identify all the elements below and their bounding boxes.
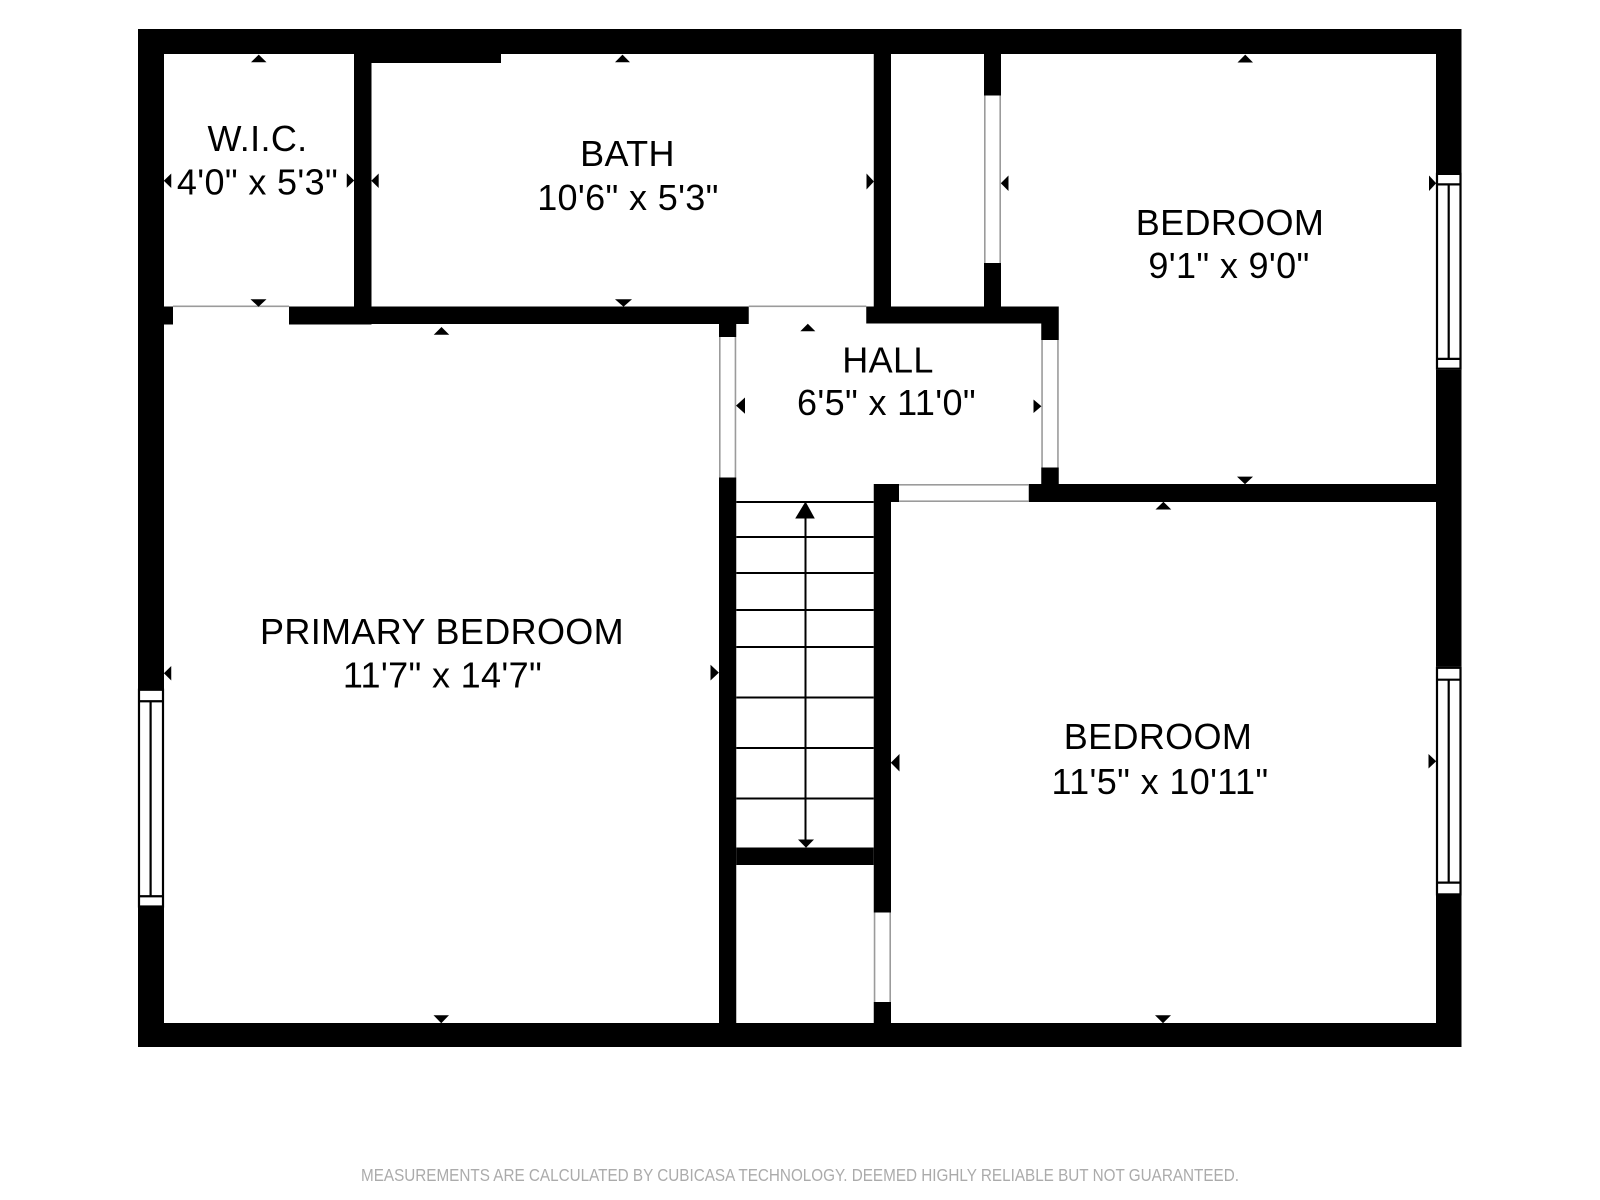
svg-text:10'6" x 5'3": 10'6" x 5'3" (537, 177, 719, 218)
svg-text:BEDROOM: BEDROOM (1136, 202, 1324, 243)
svg-text:11'5" x 10'11": 11'5" x 10'11" (1051, 761, 1268, 802)
svg-text:11'7" x 14'7": 11'7" x 14'7" (343, 655, 542, 696)
svg-text:4'0" x 5'3": 4'0" x 5'3" (177, 162, 338, 203)
svg-text:BEDROOM: BEDROOM (1064, 716, 1252, 757)
svg-text:HALL: HALL (842, 340, 933, 381)
svg-text:W.I.C.: W.I.C. (207, 118, 307, 159)
svg-text:PRIMARY BEDROOM: PRIMARY BEDROOM (260, 611, 624, 652)
svg-text:BATH: BATH (580, 133, 675, 174)
svg-text:9'1" x 9'0": 9'1" x 9'0" (1148, 245, 1309, 286)
svg-text:MEASUREMENTS ARE CALCULATED BY: MEASUREMENTS ARE CALCULATED BY CUBICASA … (361, 1165, 1239, 1185)
svg-text:6'5" x 11'0": 6'5" x 11'0" (797, 382, 976, 423)
